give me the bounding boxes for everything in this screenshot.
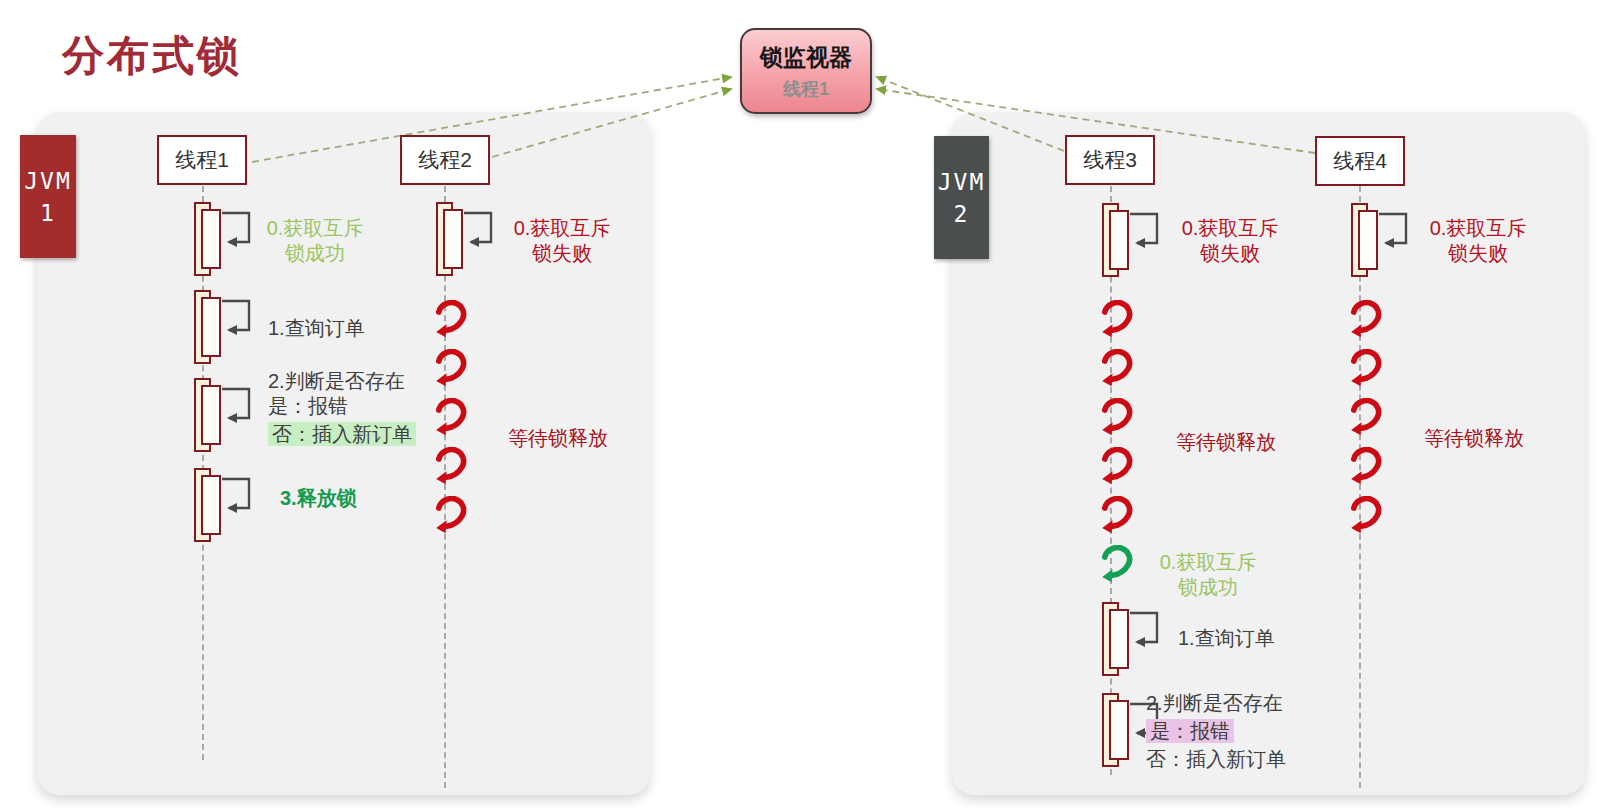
jvm1-number: 1	[40, 200, 56, 226]
loop-retry-arrow-icon	[1097, 545, 1135, 583]
t1-check-note: 2.判断是否存在 是：报错 否：插入新订单	[268, 369, 416, 447]
t2-acquire-fail-note: 0.获取互斥 锁失败	[510, 216, 614, 266]
jvm1-label: JVM	[24, 168, 72, 194]
loop-retry-arrow-icon	[1346, 398, 1384, 436]
t4-wait-note: 等待锁释放	[1424, 426, 1524, 451]
loop-retry-arrow-icon	[1346, 300, 1384, 338]
t1-bar-query-inner	[201, 297, 221, 357]
t3-query-note: 1.查询订单	[1178, 626, 1275, 651]
jvm2-label: JVM	[938, 169, 986, 195]
t3-acquire-fail-note: 0.获取互斥 锁失败	[1178, 216, 1282, 266]
loop-retry-arrow-icon	[1097, 447, 1135, 485]
loop-retry-arrow-icon	[1097, 398, 1135, 436]
t1-bar-release-inner	[201, 475, 221, 535]
loop-retry-arrow-icon	[1346, 496, 1384, 534]
loop-retry-arrow-icon	[1346, 349, 1384, 387]
thread-box-3: 线程3	[1065, 135, 1155, 185]
t1-bar-check-inner	[201, 385, 221, 445]
t2-bar-acquire-inner	[443, 209, 463, 269]
t3-wait-spiral-stack	[1097, 300, 1135, 534]
jvm2-tab: JVM 2	[934, 136, 989, 259]
loop-retry-arrow-icon	[431, 300, 469, 338]
thread-box-1: 线程1	[157, 135, 247, 185]
t4-acquire-fail-note: 0.获取互斥 锁失败	[1426, 216, 1530, 266]
t3-acquire-success-note: 0.获取互斥 锁成功	[1156, 550, 1260, 600]
loop-retry-arrow-icon	[431, 496, 469, 534]
lock-monitor: 锁监视器 线程1	[740, 28, 872, 114]
t1-acquire-success-note: 0.获取互斥 锁成功	[262, 216, 368, 266]
t4-bar-acquire-inner	[1358, 210, 1378, 270]
loop-retry-arrow-icon	[1097, 349, 1135, 387]
loop-retry-arrow-icon	[1097, 300, 1135, 338]
t1-bar-acquire-inner	[201, 209, 221, 269]
t3-bar-acquire-inner	[1109, 210, 1129, 270]
t4-wait-spiral-stack	[1346, 300, 1384, 534]
loop-retry-arrow-icon	[1346, 447, 1384, 485]
thread-box-2: 线程2	[400, 135, 490, 185]
t3-success-spiral	[1097, 545, 1135, 583]
loop-retry-arrow-icon	[431, 447, 469, 485]
t3-wait-note: 等待锁释放	[1176, 430, 1276, 455]
loop-retry-arrow-icon	[1097, 496, 1135, 534]
page-title: 分布式锁	[62, 28, 242, 84]
loop-retry-arrow-icon	[431, 398, 469, 436]
jvm1-tab: JVM 1	[20, 135, 76, 258]
distributed-lock-diagram: 分布式锁 JVM 1 JVM 2 线程1	[0, 0, 1616, 808]
loop-retry-arrow-icon	[431, 349, 469, 387]
lock-monitor-holder: 线程1	[783, 77, 829, 101]
t1-check-no-highlight: 否：插入新订单	[268, 422, 416, 446]
thread-box-4: 线程4	[1315, 136, 1405, 186]
t3-check-yes-highlight: 是：报错	[1146, 719, 1234, 743]
lock-monitor-title: 锁监视器	[760, 42, 852, 73]
t1-query-note: 1.查询订单	[268, 316, 365, 341]
t2-wait-note: 等待锁释放	[508, 426, 608, 451]
t3-check-note: 2.判断是否存在 是：报错 否：插入新订单	[1146, 691, 1286, 772]
t1-release-note: 3.释放锁	[280, 486, 357, 511]
t2-wait-spiral-stack	[431, 300, 469, 534]
t3-bar-check-inner	[1109, 700, 1129, 760]
t3-bar-query-inner	[1109, 609, 1129, 669]
jvm2-number: 2	[954, 201, 970, 227]
jvm1-panel	[37, 112, 650, 795]
